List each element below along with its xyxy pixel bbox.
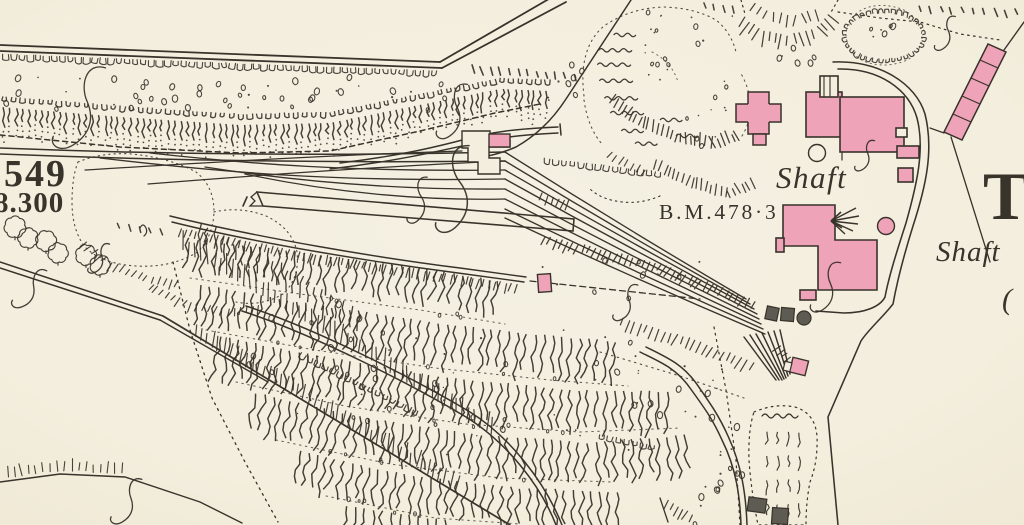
svg-text:B.M.478·3: B.M.478·3	[659, 200, 779, 224]
svg-text:Shaft: Shaft	[776, 160, 847, 195]
svg-text:T: T	[983, 158, 1024, 234]
svg-text:Shaft: Shaft	[936, 236, 1001, 268]
svg-text:8.300: 8.300	[0, 187, 64, 219]
